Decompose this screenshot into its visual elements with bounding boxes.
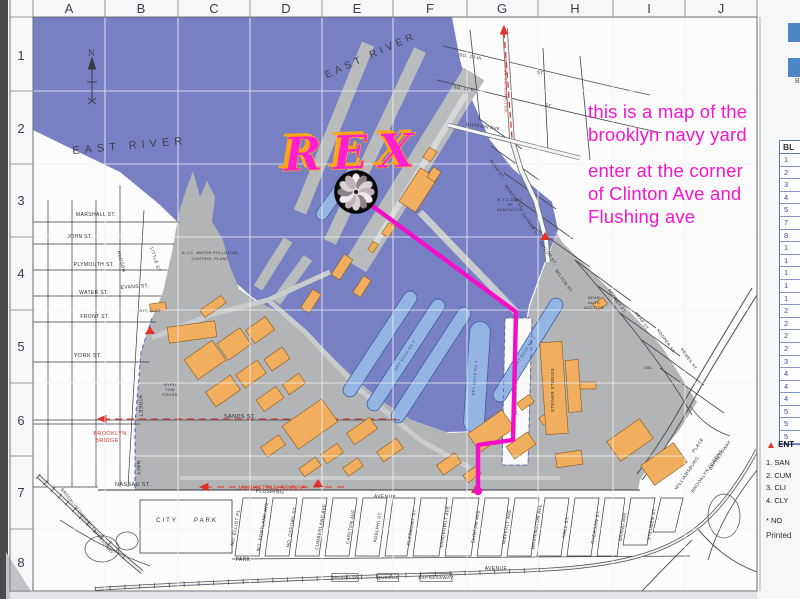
grid-row-label: 4 (17, 266, 24, 281)
table-row: 5 (780, 406, 800, 419)
map-label: BRIDGE (95, 438, 119, 444)
annotation-line: enter at the corner (588, 159, 800, 182)
table-row: 5 (780, 418, 800, 431)
page-bottom-shadow (10, 592, 757, 599)
annotation-line: this is a map of the (588, 100, 800, 123)
map-label: YORK ST. (74, 353, 102, 359)
scan-edge (0, 0, 8, 599)
map-label: SANITATION (497, 208, 523, 212)
table-row: 2 (780, 318, 800, 331)
map-label: OF (507, 203, 513, 207)
legend-color-swatch (788, 58, 800, 77)
legend-color-swatch (788, 23, 800, 42)
map-label: NAVY (135, 460, 142, 475)
map-label: TOW (165, 388, 175, 392)
building-legend-table: BL 12345781111122223444555 (779, 140, 800, 445)
table-row: 1 (780, 242, 800, 255)
entrance-legend: ▲ ENT 1. SAN2. CUM3. CLI4. CLY * NO Prin… (766, 440, 800, 540)
map-label: CONTROL PLANT (192, 257, 229, 261)
table-row: 2 (780, 167, 800, 180)
map-label: POUND (162, 393, 178, 397)
map-label: N.Y.C DEPT (498, 198, 523, 202)
map-label: SANDS ST. (224, 414, 256, 420)
map-label: INC. (644, 365, 654, 370)
grid-column-label: J (718, 1, 725, 16)
map-label: QUEENS (377, 575, 398, 580)
table-row: 4 (780, 381, 800, 394)
map-label: FRONT ST. (80, 314, 109, 320)
grid-row-label: 1 (17, 48, 24, 63)
cutoff-label: B (795, 78, 800, 85)
map-label: STEINER STUDIOS (550, 368, 555, 412)
map-label: MARSHALL ST. (76, 212, 116, 218)
table-row: 1 (780, 293, 800, 306)
grid-column-label: G (497, 1, 507, 16)
grid-column-label: H (570, 1, 579, 16)
annotation-line: of Clinton Ave and (588, 182, 800, 205)
navy-yard-map: N EAST RIVEREAST RIVERMARSHALL ST.JOHN S… (0, 0, 800, 599)
table-row: 1 (780, 255, 800, 268)
map-label: DEAR (588, 296, 600, 300)
map-label: N.Y.C. WATER POLLUTION (182, 251, 238, 255)
map-label: NYC DEPT (140, 309, 161, 313)
grid-column-label: F (426, 1, 434, 16)
map-label: JOHN ST. (67, 234, 92, 240)
table-row: 3 (780, 356, 800, 369)
map-label: WILLIAMSBURG BRIDGE (503, 58, 508, 113)
legend-entrance-item: 4. CLY (766, 495, 800, 508)
annotation-line: Flushing ave (588, 205, 800, 228)
table-row: 1 (780, 280, 800, 293)
handwritten-annotation: this is a map of the brooklyn navy yard … (588, 100, 800, 228)
table-row: 3 (780, 179, 800, 192)
map-label: BROOKLYN (331, 575, 359, 580)
grid-column-label: C (209, 1, 218, 16)
map-label: PARK (236, 557, 251, 563)
grid-row-label: 8 (17, 555, 24, 570)
map-label: STREET (137, 395, 144, 417)
city-park-block (140, 500, 232, 553)
table-row: 4 (780, 393, 800, 406)
table-row: 2 (780, 330, 800, 343)
map-label: AVENUE (374, 494, 397, 501)
grid-column-label: A (65, 1, 74, 16)
legend-note: * NO (766, 516, 800, 525)
table-row: 1 (780, 154, 800, 167)
annotation-line: brooklyn navy yard (588, 123, 800, 146)
map-label: WATER ST. (79, 290, 109, 296)
table-row: 4 (780, 368, 800, 381)
grid-row-label: 5 (17, 339, 24, 354)
starburst-photo-marker (336, 172, 377, 213)
legend-title: ENT (778, 440, 794, 449)
grid-column-label: D (281, 1, 290, 16)
legend-printed: Printed (766, 531, 800, 540)
svg-text:N: N (88, 48, 95, 58)
map-label: EXPRESSWAY (418, 575, 453, 580)
table-row: 8 (780, 230, 800, 243)
legend-entrance-item: 1. SAN (766, 457, 800, 470)
table-header: BL (780, 141, 800, 154)
table-row: 2 (780, 343, 800, 356)
map-label: MANHATTAN BRIDGE (238, 486, 306, 492)
grid-row-label: 7 (17, 485, 24, 500)
map-label: NASSAU ST. (115, 482, 151, 488)
table-row: 7 (780, 217, 800, 230)
grid-column-label: E (353, 1, 362, 16)
grid-row-label: 6 (17, 413, 24, 428)
map-label: AUCTION (584, 306, 604, 310)
map-label: AUTO (588, 301, 600, 305)
legend-entrance-item: 2. CUM (766, 470, 800, 483)
map-label: BROOKLYN (93, 431, 126, 437)
legend-entrance-item: 3. CLI (766, 482, 800, 495)
map-label: CITY (156, 518, 178, 524)
table-row: 1 (780, 267, 800, 280)
map-label: NYPD (164, 383, 176, 387)
map-label: AVENUE (485, 566, 508, 572)
route-end-dot (474, 487, 482, 495)
grid-row-label: 3 (17, 193, 24, 208)
legend-entrance-triangle-icon: ▲ (766, 440, 776, 451)
table-row: 5 (780, 204, 800, 217)
map-label: PLYMOUTH ST. (74, 262, 115, 268)
fort-greene-blocks (235, 498, 683, 556)
map-label: PARK (194, 518, 218, 524)
grid-column-label: B (137, 1, 146, 16)
table-row: 2 (780, 305, 800, 318)
scanned-map-page: N EAST RIVEREAST RIVERMARSHALL ST.JOHN S… (0, 0, 800, 599)
grid-row-label: 2 (17, 121, 24, 136)
table-row: 4 (780, 192, 800, 205)
grid-column-label: I (647, 1, 651, 16)
